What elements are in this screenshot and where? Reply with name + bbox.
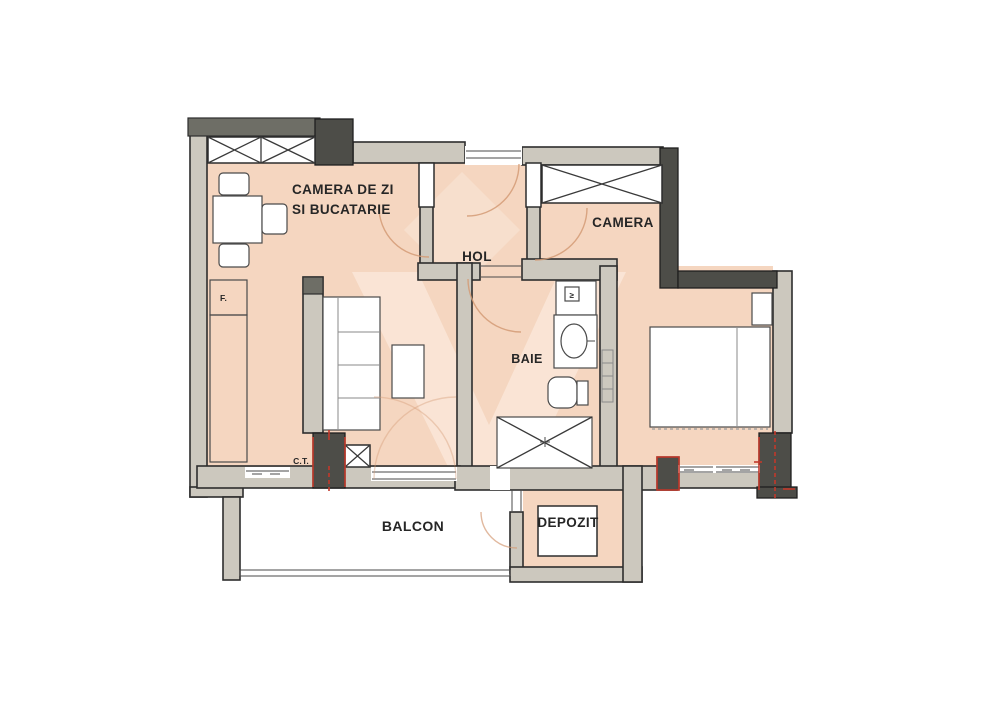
floor-plan-page: CAMERA DE ZI SI BUCATARIE HOL CAMERA BAI… — [0, 0, 1000, 720]
washing-machine-icon — [556, 281, 596, 315]
bedroom-label: CAMERA — [592, 215, 654, 230]
storage-label: DEPOZIT — [537, 515, 599, 530]
dining-chair-top — [219, 173, 249, 195]
beam-top-left — [188, 118, 320, 136]
dining-table — [213, 196, 262, 243]
boiler-label: C.T. — [293, 456, 309, 466]
pillar-top-left — [315, 119, 353, 165]
washer-mark-label: ≥ — [570, 291, 575, 300]
fridge-label: F. — [220, 293, 227, 303]
wall-bathroom-left — [457, 263, 472, 484]
balcony-label: BALCON — [382, 518, 444, 534]
door-opening-hall-living — [419, 163, 434, 207]
wall-bedroom-window-sill — [678, 472, 760, 488]
sofa-partition-cap — [303, 277, 323, 294]
wall-top-b — [522, 147, 663, 165]
dining-chair-right — [262, 204, 287, 234]
coffee-table — [392, 345, 424, 398]
sofa — [323, 297, 380, 430]
wall-storage-right — [623, 466, 642, 582]
living-room-label-line1: CAMERA DE ZI — [292, 182, 394, 197]
balcony-railing — [240, 570, 510, 576]
boiler-pillar — [313, 433, 345, 488]
pillar-bedroom-window-left — [657, 457, 679, 490]
living-room-label-line2: SI BUCATARIE — [292, 202, 391, 217]
hallway-label: HOL — [462, 249, 492, 264]
nightstand — [752, 293, 772, 325]
exterior-notch — [490, 466, 510, 490]
entrance-opening — [465, 146, 522, 165]
wall-right-outer — [773, 271, 792, 433]
bathroom-label: BAIE — [511, 352, 542, 366]
storage-door-jambs — [512, 490, 521, 511]
living-room-bottom-window — [245, 467, 290, 478]
bed — [650, 327, 770, 427]
wall-sofa-partition — [303, 277, 323, 433]
wall-top-a — [353, 142, 465, 163]
door-opening-hall-bedroom — [526, 163, 541, 207]
floor-plan: CAMERA DE ZI SI BUCATARIE HOL CAMERA BAI… — [0, 0, 1000, 720]
storage-inner-box — [538, 506, 597, 556]
wall-balcony-left — [223, 497, 240, 580]
wall-left-outer — [190, 135, 207, 497]
wall-bedroom-notch-horizontal — [678, 271, 777, 288]
wall-bedroom-left — [600, 266, 617, 470]
wall-hall-right — [527, 206, 540, 262]
wall-storage-left — [510, 512, 523, 573]
toilet-icon — [548, 377, 577, 408]
dining-chair-bottom — [219, 244, 249, 267]
wall-bathroom-bottom — [455, 466, 677, 490]
toilet-tank — [577, 381, 588, 405]
